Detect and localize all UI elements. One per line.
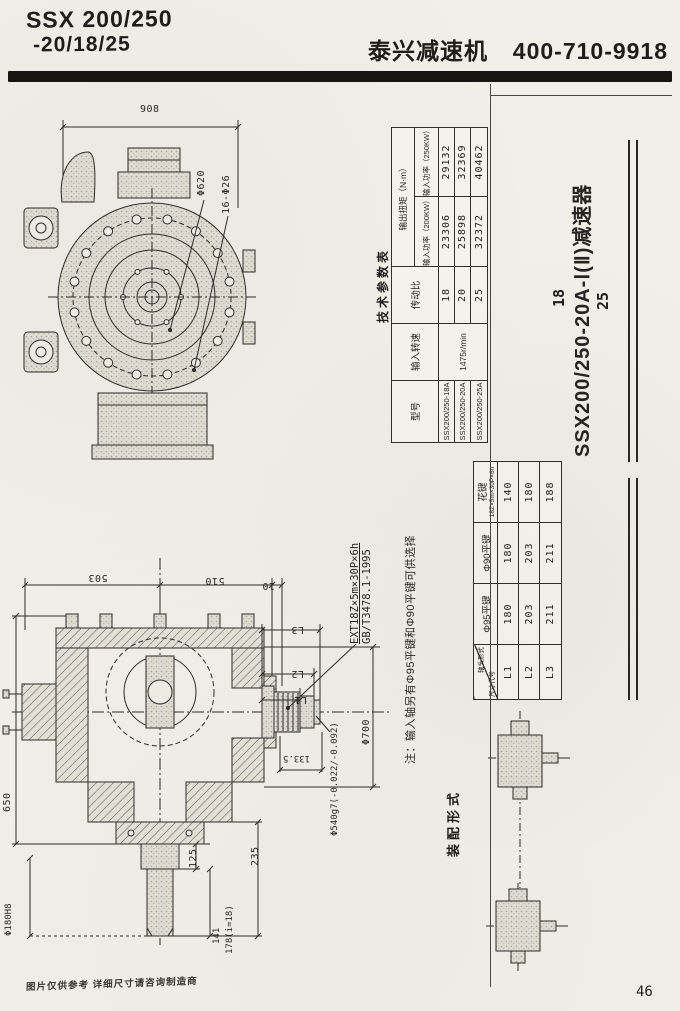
diag-header-shaft-type: 轴头形式	[475, 647, 485, 673]
dim-L2: L2	[291, 668, 304, 679]
dim-code-cell: L3	[540, 645, 562, 700]
params-row-18: SSX200/250-18A 1475r/min 18 23306 29132	[439, 128, 455, 443]
ratio-cell: 18	[439, 267, 455, 324]
torque250-cell: 40462	[471, 128, 488, 197]
brand-line: 泰兴减速机 400-710-9918	[368, 32, 668, 66]
spline-value: 180	[519, 462, 540, 523]
brand-name: 泰兴减速机	[368, 38, 488, 64]
key90-value: 180	[498, 523, 519, 584]
dim-178: 178(i=18)	[225, 892, 236, 954]
disclaimer-note: 图片仅供参考 详细尺寸请咨询制造商	[26, 973, 198, 993]
spline-callout-spec: EXT18Z×5m×30P×6h	[349, 486, 361, 644]
assembly-forms-drawing	[470, 705, 680, 1005]
index-tab-double-line-lower	[628, 478, 638, 700]
speed-cell: 1475r/min	[439, 324, 488, 381]
tech-params-title: 技术参数表	[374, 128, 391, 443]
spline-value: 140	[498, 462, 519, 523]
header-rule	[8, 71, 672, 82]
dim-overall-width: 908	[140, 104, 160, 115]
params-row-25: SSX200/250-25A 25 32372 40462	[471, 128, 488, 443]
page-number: 46	[636, 984, 653, 1000]
params-row-20: SSX200/250-20A 20 25898 32369	[455, 128, 471, 443]
model-cell: SSX200/250-18A	[439, 381, 455, 443]
model-cell: SSX200/250-25A	[471, 381, 488, 443]
torque250-cell: 32369	[455, 128, 471, 197]
dim-shaft-tolerance: Φ540g7(-0.022/-0.092)	[330, 686, 343, 836]
dim-235: 235	[250, 836, 262, 866]
key90-value: 203	[519, 523, 540, 584]
column-divider-line	[490, 84, 491, 987]
tech-params-block: 技术参数表 型号 输入转速 传动比 输出扭矩（N·m） 输入功率（200KW） …	[374, 128, 490, 443]
spline-callout-standard: GB/T3478.1-1995	[361, 486, 373, 644]
col-header-speed: 输入转速	[392, 324, 439, 381]
col-header-key90: Φ90平键	[474, 523, 498, 584]
dim-L3: L3	[291, 624, 304, 635]
shaft-row-L1: L1 180 180 140	[498, 462, 519, 700]
diag-header-dim-code: 尺寸代号	[486, 671, 496, 697]
dim-bolt-holes: 16-Φ26	[221, 140, 234, 214]
spline-callout: EXT18Z×5m×30P×6h GB/T3478.1-1995	[349, 486, 379, 644]
col-header-spline: 花键 18Z×5m×30P×6h	[474, 462, 498, 523]
alt-ratio-18: 18	[550, 285, 566, 307]
shaft-row-L2: L2 203 203 180	[519, 462, 540, 700]
spline-value: 188	[540, 462, 562, 523]
col-header-key95: Φ95平键	[474, 584, 498, 645]
model-designation-vertical: SSX200/250-20A-Ⅰ(Ⅱ)减速器	[566, 142, 592, 457]
assembly-form-label: 装配形式	[443, 795, 460, 857]
col-header-ratio: 传动比	[392, 267, 439, 324]
model-cell: SSX200/250-20A	[455, 381, 471, 443]
dim-133-5: 133.5	[283, 753, 310, 763]
page-title-ratios: -20/18/25	[33, 32, 131, 57]
col-header-torque: 输出扭矩（N·m）	[392, 128, 415, 267]
alt-ratio-25: 25	[594, 288, 610, 310]
col-header-power200: 输入功率（200KW）	[415, 197, 439, 267]
dim-height-650: 650	[2, 776, 15, 812]
spline-header-label: 花键	[475, 462, 489, 522]
ratio-cell: 25	[471, 267, 488, 324]
key95-value: 203	[519, 584, 540, 645]
ratio-cell: 20	[455, 267, 471, 324]
page-title-model: SSX 200/250	[26, 5, 173, 34]
dim-503: 503	[88, 572, 108, 583]
col-header-power250: 输入功率（250KW）	[415, 128, 439, 197]
torque250-cell: 29132	[439, 128, 455, 197]
dim-bottom-shaft: Φ180H8	[4, 856, 16, 936]
key95-value: 180	[498, 584, 519, 645]
dim-510: 510	[205, 575, 225, 586]
torque200-cell: 25898	[455, 197, 471, 267]
right-column-top-line	[490, 95, 672, 96]
dim-flange-od: Φ700	[361, 703, 374, 745]
dim-code-cell: L1	[498, 645, 519, 700]
tech-params-table: 型号 输入转速 传动比 输出扭矩（N·m） 输入功率（200KW） 输入功率（2…	[391, 127, 488, 443]
torque200-cell: 23306	[439, 197, 455, 267]
catalog-page: { "header": { "model_line1": "SSX 200/25…	[0, 0, 680, 1011]
dim-code-cell: L2	[519, 645, 540, 700]
dim-bolt-circle: Φ620	[196, 140, 209, 196]
key95-value: 211	[540, 584, 562, 645]
col-header-model: 型号	[392, 381, 439, 443]
shaft-dims-block: 轴头形式 尺寸代号 Φ95平键 Φ90平键 花键 18Z×5m×30P×6h L…	[473, 462, 561, 700]
key90-value: 211	[540, 523, 562, 584]
shaft-dims-table: 轴头形式 尺寸代号 Φ95平键 Φ90平键 花键 18Z×5m×30P×6h L…	[473, 461, 562, 700]
torque200-cell: 32372	[471, 197, 488, 267]
brand-phone: 400-710-9918	[513, 38, 668, 64]
shaft-row-L3: L3 211 211 188	[540, 462, 562, 700]
diagonal-header-cell: 轴头形式 尺寸代号	[474, 645, 498, 700]
dim-125: 125	[188, 840, 200, 868]
dim-141: 141	[212, 898, 223, 944]
index-tab-double-line-upper	[628, 140, 638, 462]
dim-L1: L1	[294, 694, 307, 705]
dim-10: 10	[262, 580, 275, 591]
input-shaft-note: 注：输入轴另有Φ95平键和Φ90平键可供选择	[402, 548, 417, 764]
